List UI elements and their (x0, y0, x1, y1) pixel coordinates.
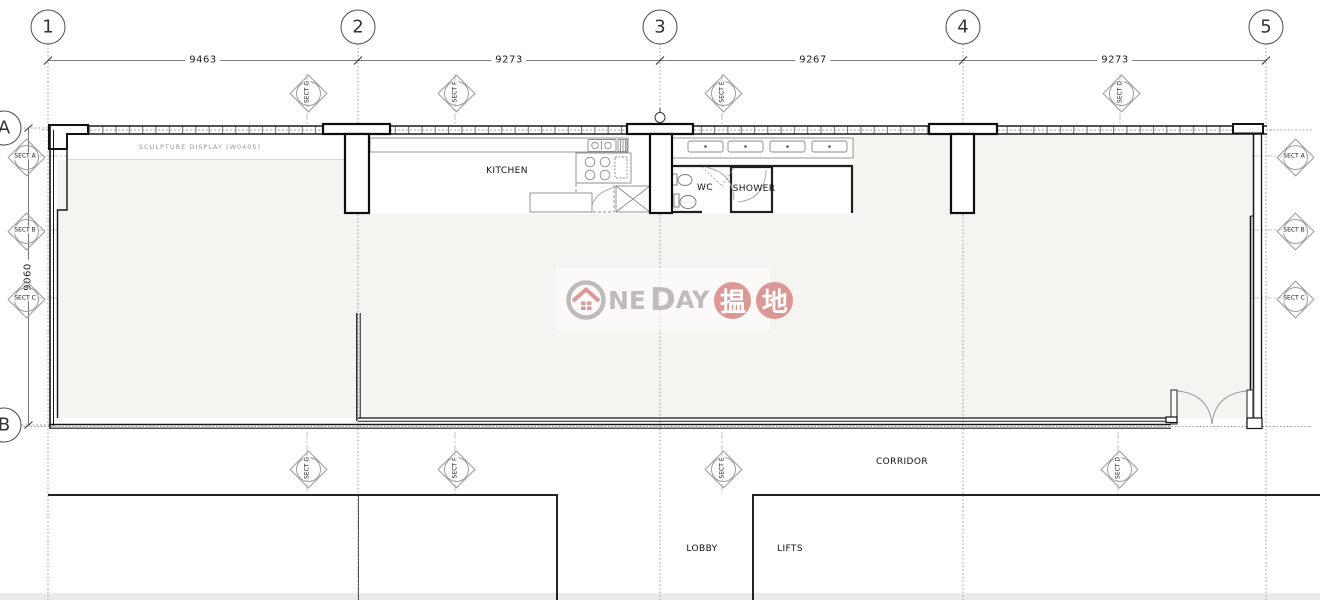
floor-plan-page: 1 2 3 4 5 A B 9463 9273 9267 9273 9060 S… (0, 0, 1320, 600)
sculpture-display-note: SCULPTURE DISPLAY (W0405) (139, 143, 261, 151)
house-logo-icon (566, 280, 606, 320)
section-marker-bottom-e: SECT E (702, 448, 742, 488)
dimension-top-3: 9267 (795, 55, 830, 66)
grid-bubble-4: 4 (946, 10, 981, 45)
section-marker-right-c: SECT C (1274, 278, 1314, 318)
grid-bubble-1: 1 (31, 10, 66, 45)
section-marker-left-b: SECT B (5, 210, 45, 250)
section-marker-right-b: SECT B (1274, 210, 1314, 250)
grid-bubble-3: 3 (643, 10, 678, 45)
door-bell-symbol (655, 108, 665, 123)
section-marker-top-d: SECT D (1100, 72, 1140, 112)
section-marker-bottom-f: SECT F (435, 448, 475, 488)
lifts-label: LIFTS (777, 544, 803, 554)
shower-label: SHOWER (733, 184, 776, 194)
watermark-char-1: 揾 (714, 282, 751, 319)
section-marker-top-f: SECT F (435, 72, 475, 112)
section-marker-left-a: SECT A (5, 136, 45, 176)
corridor-lobby-walls (48, 494, 1320, 600)
kitchen-label: KITCHEN (486, 166, 528, 176)
section-marker-left-c: SECT C (5, 278, 45, 318)
wc-label: WC (697, 183, 713, 193)
watermark-char-2: 地 (756, 282, 793, 319)
watermark-oneday-logo: NEDAY 揾 地 (566, 277, 793, 323)
grid-bubble-5: 5 (1249, 10, 1284, 45)
section-marker-bottom-g: SECT G (287, 448, 327, 488)
dimension-top-1: 9463 (185, 55, 220, 66)
dimension-top-4: 9273 (1097, 55, 1132, 66)
dimension-top-2: 9273 (491, 55, 526, 66)
lobby-label: LOBBY (686, 544, 717, 554)
section-marker-bottom-d: SECT D (1098, 448, 1138, 488)
section-marker-top-e: SECT E (702, 72, 742, 112)
watermark-letters: NEDAY (608, 285, 709, 316)
corridor-label: CORRIDOR (876, 457, 928, 467)
grid-bubble-2: 2 (341, 10, 376, 45)
section-marker-right-a: SECT A (1274, 136, 1314, 176)
section-marker-top-g: SECT G (287, 72, 327, 112)
